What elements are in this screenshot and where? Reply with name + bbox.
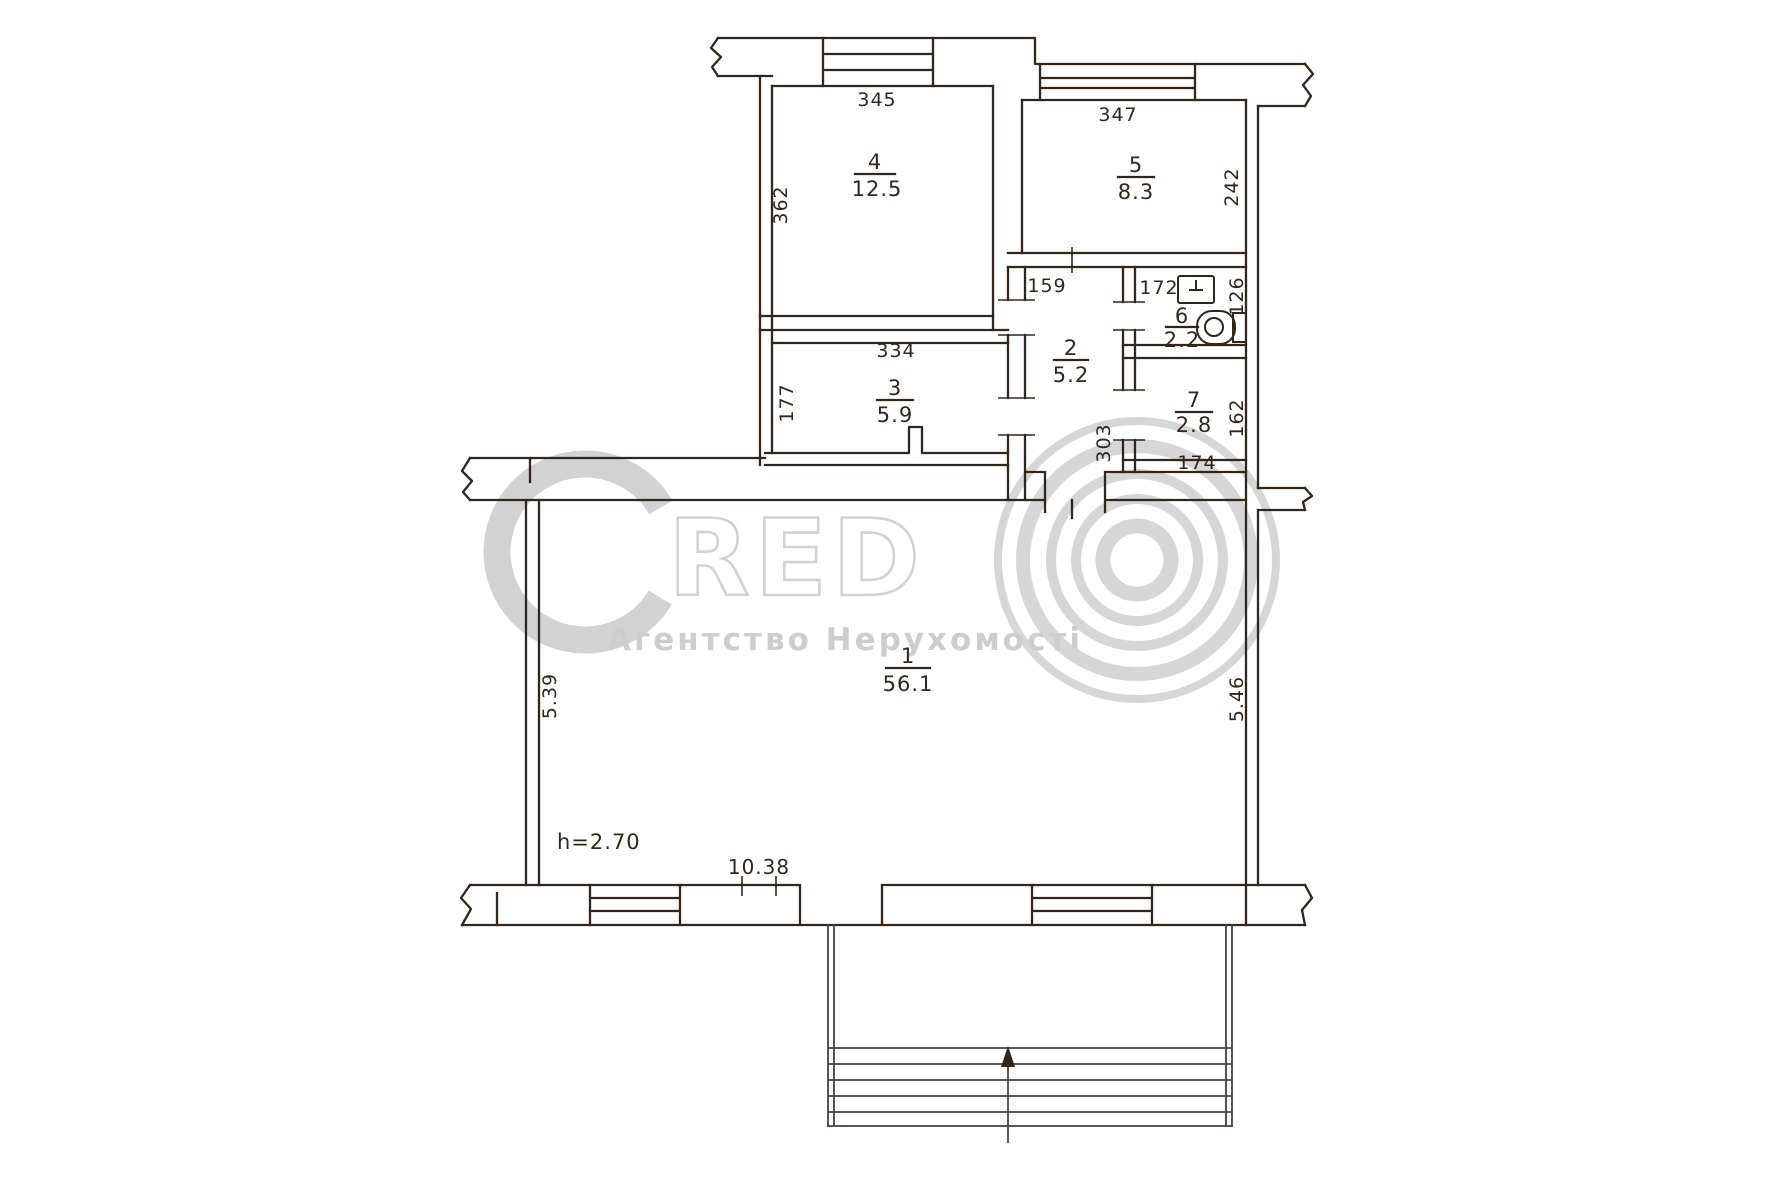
outer-top-wall — [718, 38, 1305, 64]
room-6-dim-right: 126 — [1226, 276, 1248, 315]
room-2-dim-left: 303 — [1093, 423, 1115, 462]
watermark-red-text: RED — [668, 497, 925, 620]
wall-room5-bottom — [1008, 253, 1246, 267]
room-7-dim-right: 162 — [1226, 398, 1248, 437]
room-3-number: 3 — [888, 376, 902, 400]
room-5-area: 8.3 — [1118, 180, 1154, 204]
sink-icon — [1178, 276, 1214, 303]
window-hatch-room5 — [1040, 64, 1195, 100]
room-4-number: 4 — [868, 150, 882, 174]
room-5-number: 5 — [1129, 153, 1143, 177]
wall-break-mark-top-right — [1258, 64, 1313, 106]
watermark-c-ring — [497, 464, 673, 640]
wall-break-mark-bottom-right — [1302, 885, 1312, 925]
room-1-dim-bottom: 10.38 — [728, 855, 790, 879]
room-1-dim-left: 5.39 — [539, 673, 561, 719]
wall-room1-left — [526, 500, 539, 885]
window-hatch-room1-right — [1032, 885, 1152, 925]
room-1-dim-right: 5.46 — [1226, 676, 1248, 722]
room-2-dim-top: 159 — [1027, 275, 1066, 297]
watermark-logo: RED Агентство Нерухомості — [497, 421, 1276, 699]
room-7-number: 7 — [1187, 388, 1201, 412]
watermark-subtitle: Агентство Нерухомості — [607, 622, 1083, 658]
room-5-dim-top: 347 — [1098, 104, 1137, 126]
room-5-dim-right: 242 — [1221, 167, 1243, 206]
floor-plan-scan: RED Агентство Нерухомості — [0, 0, 1772, 1181]
wall-room4-room3 — [760, 316, 1008, 343]
ceiling-height-note: h=2.70 — [557, 830, 641, 854]
room-4-dim-left: 362 — [770, 185, 792, 224]
room-6-area: 2.2 — [1164, 328, 1200, 352]
window-hatch-room4 — [823, 38, 933, 86]
room-1-number: 1 — [901, 644, 915, 668]
arrow-up-icon — [1001, 1046, 1015, 1067]
room-3-area: 5.9 — [877, 403, 913, 427]
balcony-stairs — [828, 1048, 1232, 1126]
wall-break-mark-top-left — [711, 38, 772, 76]
wall-room1-bottom — [462, 885, 1305, 925]
room-3-dim-top: 334 — [876, 340, 915, 362]
window-hatch-room1-left — [590, 885, 680, 925]
wall-room3-bottom — [765, 427, 1008, 465]
room-4-dim-top: 345 — [857, 89, 896, 111]
room-3-dim-left: 177 — [776, 383, 798, 422]
wall-hall-left — [1008, 267, 1025, 500]
room-4-area: 12.5 — [852, 177, 903, 201]
room-6-number: 6 — [1175, 304, 1189, 328]
room-6-dim-top: 172 — [1139, 277, 1178, 299]
room-7-dim-bottom: 174 — [1177, 452, 1216, 474]
room-2-number: 2 — [1064, 336, 1078, 360]
wall-break-mark-bottom-left — [461, 885, 497, 925]
room-7-area: 2.8 — [1176, 413, 1212, 437]
left-wall-upper-block — [760, 76, 772, 465]
floor-plan-drawing: RED Агентство Нерухомості — [0, 0, 1772, 1181]
room-1-area: 56.1 — [883, 672, 934, 696]
room-2-area: 5.2 — [1053, 363, 1089, 387]
